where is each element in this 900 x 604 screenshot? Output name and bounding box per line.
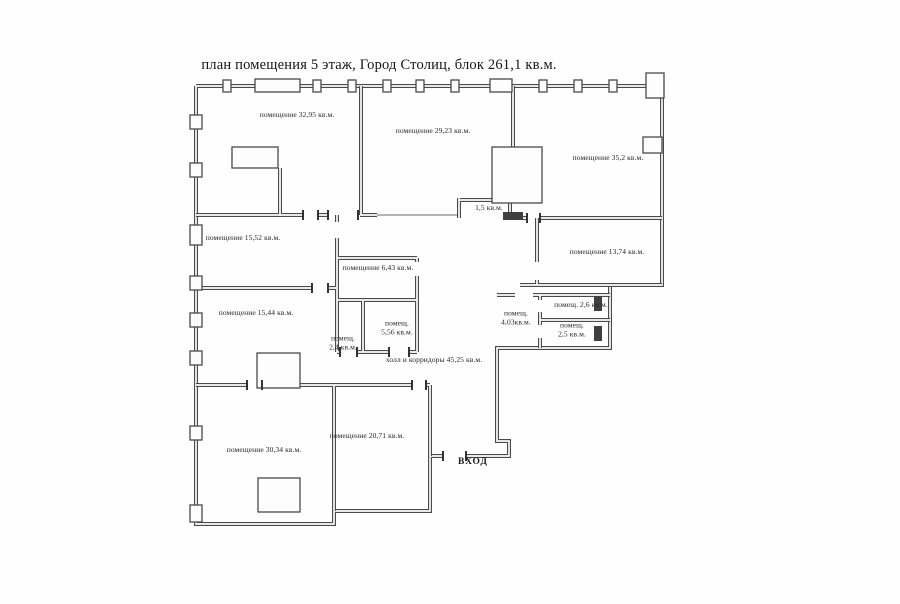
room-area-label: помещ. 2,4 кв.м.	[329, 335, 357, 352]
room-area-label: помещение 13,74 кв.м.	[570, 248, 645, 257]
room-area-label: помещение 29,23 кв.м.	[396, 127, 471, 136]
room-area-label: помещение 15,52 кв.м.	[206, 234, 281, 243]
room-area-label: помещение 20,71 кв.м.	[330, 432, 405, 441]
room-area-label: помещ. 5,56 кв.м.	[381, 320, 413, 337]
room-area-label: 1,5 кв.м.	[475, 204, 503, 213]
room-area-label: помещение 15,44 кв.м.	[219, 309, 294, 318]
room-area-label: помещение 32,95 кв.м.	[260, 111, 335, 120]
room-labels-layer: помещение 32,95 кв.м.помещение 29,23 кв.…	[0, 0, 900, 604]
room-area-label: помещ. 4,03кв.м.	[501, 310, 531, 327]
room-area-label: помещение 6,43 кв.м.	[343, 264, 414, 273]
room-area-label: помещение 30,34 кв.м.	[227, 446, 302, 455]
room-area-label: холл и корридоры 45,25 кв.м.	[386, 356, 482, 365]
floor-plan-page: план помещения 5 этаж, Город Столиц, бло…	[0, 0, 900, 604]
room-area-label: помещение 35,2 кв.м.	[573, 154, 644, 163]
entrance-label: ВХОД	[458, 457, 488, 467]
room-area-label: помещ. 2,5 кв.м.	[558, 322, 586, 339]
room-area-label: помещ. 2,6 кв.м.	[554, 301, 608, 310]
